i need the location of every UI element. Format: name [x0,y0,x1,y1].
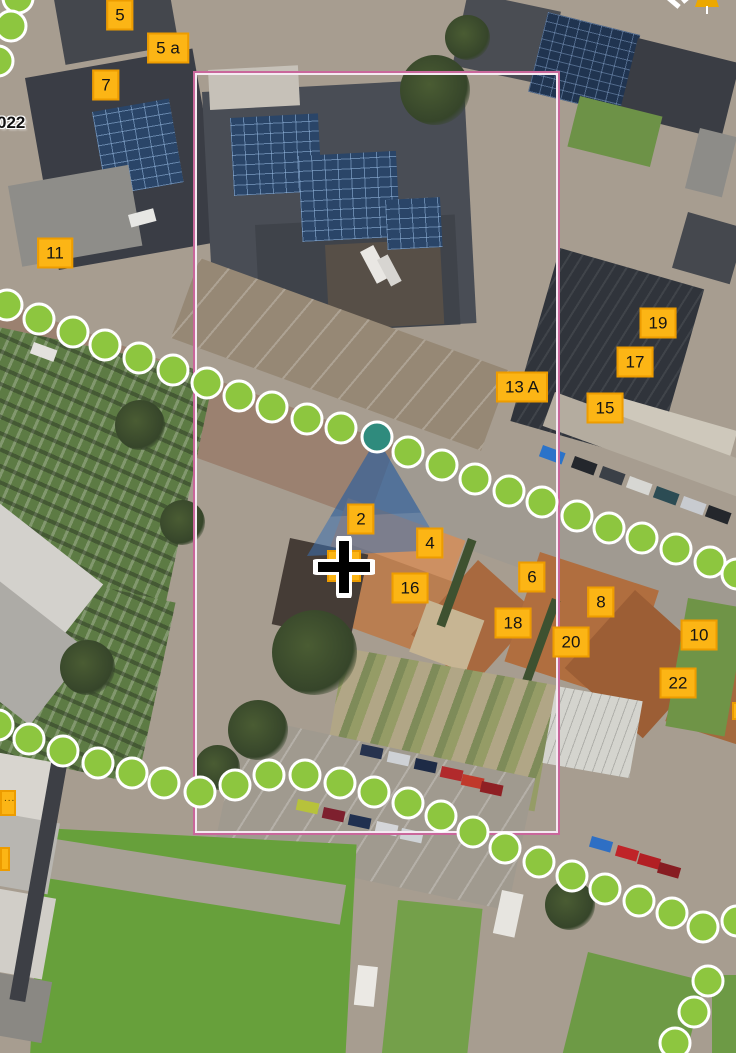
route-point[interactable] [291,403,324,436]
partial-close-icon[interactable] [667,0,681,9]
imagery-year-text: 022 [0,113,25,133]
route-point[interactable] [82,747,115,780]
route-point[interactable] [593,512,626,545]
van [354,965,378,1007]
route-point[interactable] [289,759,322,792]
route-point[interactable] [589,873,622,906]
tree [60,640,115,695]
route-point[interactable] [659,1027,692,1053]
building-roof [685,128,736,197]
route-point[interactable] [692,965,725,998]
route-point[interactable] [561,500,594,533]
route-point[interactable] [184,776,217,809]
address-label-partial[interactable] [732,702,736,720]
route-point[interactable] [253,759,286,792]
route-point[interactable] [526,486,559,519]
route-point[interactable] [116,757,149,790]
selected-route-point[interactable] [361,421,394,454]
address-label-5[interactable]: 5 [106,0,133,31]
route-point[interactable] [0,10,28,43]
building-roof [672,212,736,284]
route-point[interactable] [23,303,56,336]
route-point[interactable] [656,897,689,930]
address-label-16[interactable]: 16 [392,573,429,604]
car [571,456,598,475]
address-label-10[interactable]: 10 [681,620,718,651]
route-point[interactable] [426,449,459,482]
route-point[interactable] [57,316,90,349]
address-label-20[interactable]: 20 [553,627,590,658]
route-point[interactable] [219,769,252,802]
car [705,505,732,524]
address-label-4[interactable]: 4 [416,528,443,559]
route-point[interactable] [358,776,391,809]
car [599,466,626,485]
grass-patch [381,900,483,1053]
tree [445,15,490,60]
route-point[interactable] [148,767,181,800]
address-label-5a[interactable]: 5 a [147,33,189,64]
address-label-18[interactable]: 18 [495,608,532,639]
crosshair-marker [313,536,375,598]
route-point[interactable] [687,911,720,944]
crosshair-cross [318,541,370,593]
route-point[interactable] [489,832,522,865]
route-point[interactable] [626,522,659,555]
route-point[interactable] [392,436,425,469]
partial-marker-stem [706,6,708,14]
address-label-6[interactable]: 6 [518,562,545,593]
route-point[interactable] [721,905,736,938]
car [615,845,639,862]
address-label-8[interactable]: 8 [587,587,614,618]
aerial-map-viewport[interactable]: 55 a71113 A19171524166188201022.... 022 [0,0,736,1053]
route-point[interactable] [678,996,711,1029]
address-label-partial[interactable]: .... [0,790,16,816]
route-point[interactable] [392,787,425,820]
route-point[interactable] [13,723,46,756]
route-point[interactable] [493,475,526,508]
route-point[interactable] [123,342,156,375]
route-point[interactable] [623,885,656,918]
address-label-17[interactable]: 17 [617,347,654,378]
partial-close-icon[interactable] [681,0,695,4]
address-label-11[interactable]: 11 [37,238,73,269]
route-point[interactable] [191,367,224,400]
car [680,496,707,515]
address-label-partial[interactable] [0,847,10,871]
address-label-22[interactable]: 22 [660,668,697,699]
route-point[interactable] [556,860,589,893]
address-label-2[interactable]: 2 [347,504,374,535]
tree [115,400,165,450]
route-point[interactable] [457,816,490,849]
address-label-13A[interactable]: 13 A [496,372,548,403]
route-point[interactable] [89,329,122,362]
car [626,476,653,495]
route-point[interactable] [47,735,80,768]
car [653,486,680,505]
route-point[interactable] [425,800,458,833]
route-point[interactable] [223,380,256,413]
route-point[interactable] [324,767,357,800]
car [589,836,613,853]
address-label-19[interactable]: 19 [640,308,677,339]
route-point[interactable] [459,463,492,496]
route-point[interactable] [157,354,190,387]
route-point[interactable] [523,846,556,879]
route-point[interactable] [0,45,15,78]
car [657,862,681,879]
route-point[interactable] [660,533,693,566]
route-point[interactable] [325,412,358,445]
route-point[interactable] [256,391,289,424]
address-label-7[interactable]: 7 [92,70,119,101]
address-label-15[interactable]: 15 [587,393,624,424]
